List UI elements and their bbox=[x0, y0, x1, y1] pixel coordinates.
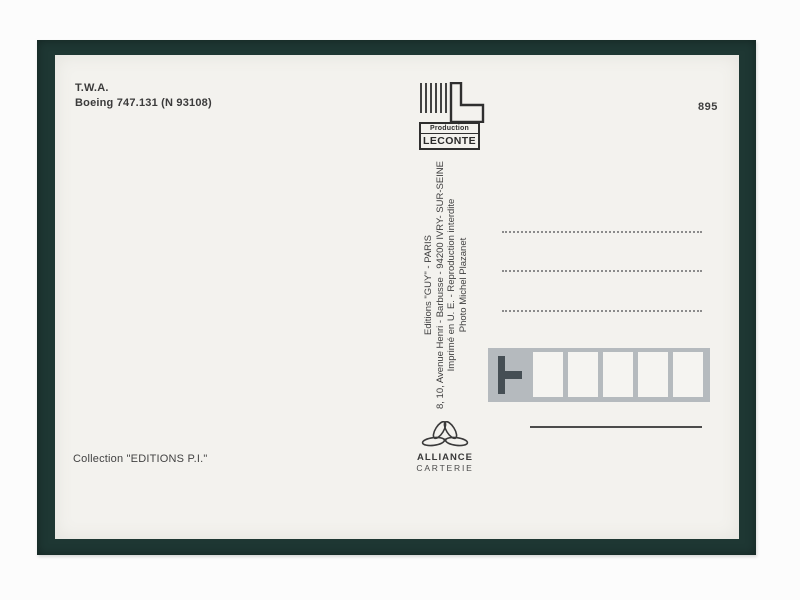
postal-digit-boxes bbox=[533, 352, 703, 397]
subject-caption: T.W.A. Boeing 747.131 (N 93108) bbox=[75, 81, 212, 111]
leconte-logo: Production LECONTE bbox=[419, 82, 485, 150]
printer-credits: Editions "GUY" - PARIS 8, 10, Avenue Hen… bbox=[423, 150, 469, 420]
postal-digit-box bbox=[533, 352, 563, 397]
leconte-label-top: Production bbox=[421, 124, 478, 134]
locality-line bbox=[530, 426, 702, 428]
postal-sorting-mark-icon bbox=[498, 356, 532, 396]
alliance-type: CARTERIE bbox=[385, 463, 505, 473]
leconte-label-bottom: LECONTE bbox=[421, 134, 478, 148]
address-line-2 bbox=[502, 270, 702, 272]
alliance-logo: ALLIANCE CARTERIE bbox=[385, 421, 505, 473]
photo-credit-line: Photo Michel Plazanet bbox=[458, 150, 470, 420]
address-line: 8, 10, Avenue Henri - Barbusse - 94200 I… bbox=[435, 150, 447, 420]
address-line-3 bbox=[502, 310, 702, 312]
address-line-1 bbox=[502, 231, 702, 233]
postal-digit-box bbox=[638, 352, 668, 397]
printed-in-line: Imprimé en U. E. - Reproduction interdit… bbox=[446, 150, 458, 420]
publisher-line: Editions "GUY" - PARIS bbox=[423, 150, 435, 420]
leconte-logo-icon bbox=[419, 82, 485, 123]
airline-name: T.W.A. bbox=[75, 81, 212, 96]
postal-digit-box bbox=[603, 352, 633, 397]
card-number: 895 bbox=[698, 101, 718, 113]
postal-digit-box bbox=[673, 352, 703, 397]
collection-credit: Collection "EDITIONS P.I." bbox=[73, 453, 207, 465]
aircraft-description: Boeing 747.131 (N 93108) bbox=[75, 96, 212, 111]
postal-code-zone bbox=[488, 348, 710, 402]
alliance-butterfly-icon bbox=[421, 421, 469, 449]
alliance-name: ALLIANCE bbox=[385, 452, 505, 463]
postal-digit-box bbox=[568, 352, 598, 397]
leconte-logo-text-box: Production LECONTE bbox=[419, 122, 480, 150]
postcard-back: T.W.A. Boeing 747.131 (N 93108) 895 Prod… bbox=[55, 55, 739, 539]
